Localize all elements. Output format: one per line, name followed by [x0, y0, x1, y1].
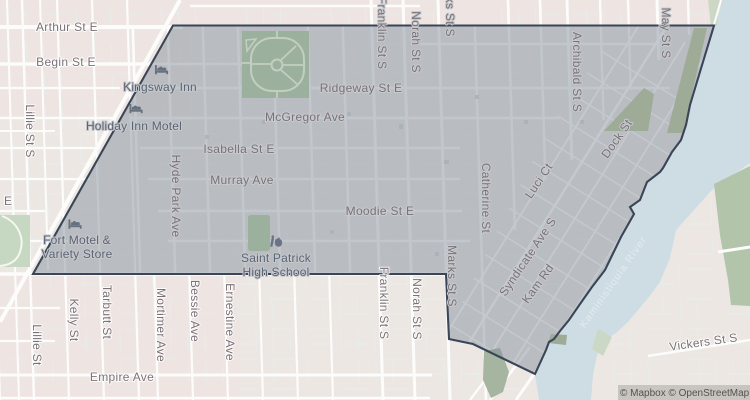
svg-text:Tarbutt St: Tarbutt St	[100, 285, 114, 340]
svg-text:Begin St E: Begin St E	[36, 55, 96, 69]
svg-text:Variety Store: Variety Store	[41, 247, 112, 261]
svg-text:Kingsway Inn: Kingsway Inn	[123, 80, 197, 94]
svg-text:Saint Patrick: Saint Patrick	[241, 251, 312, 265]
svg-text:Kelly St: Kelly St	[67, 298, 81, 341]
svg-text:Murray Ave: Murray Ave	[210, 173, 273, 187]
svg-text:© Mapbox © OpenStreetMap: © Mapbox © OpenStreetMap	[620, 388, 750, 399]
svg-text:Lillie St S: Lillie St S	[23, 104, 37, 157]
svg-text:Marks St S: Marks St S	[443, 0, 457, 37]
svg-text:Franklin St S: Franklin St S	[375, 0, 389, 69]
svg-text:Holiday Inn Motel: Holiday Inn Motel	[86, 119, 182, 133]
svg-text:Catherine St: Catherine St	[479, 163, 493, 234]
svg-text:McGregor Ave: McGregor Ave	[265, 110, 345, 124]
svg-text:Mortimer Ave: Mortimer Ave	[154, 288, 168, 362]
svg-text:Hyde Park Ave: Hyde Park Ave	[169, 154, 183, 237]
svg-text:Fort Motel &: Fort Motel &	[43, 233, 111, 247]
svg-text:Ernestine Ave: Ernestine Ave	[223, 283, 237, 361]
svg-text:Arthur St E: Arthur St E	[36, 20, 98, 34]
svg-text:Marks St S: Marks St S	[445, 245, 459, 307]
svg-text:Norah St S: Norah St S	[410, 278, 424, 340]
svg-text:Ridgeway St E: Ridgeway St E	[320, 81, 403, 95]
svg-text:Empire Ave: Empire Ave	[90, 370, 154, 384]
svg-text:Lillie St: Lillie St	[30, 324, 44, 366]
svg-text:Isabella St E: Isabella St E	[203, 142, 274, 156]
svg-text:May St S: May St S	[659, 7, 673, 58]
svg-text:Franklin St S: Franklin St S	[377, 267, 391, 340]
svg-text:High School: High School	[243, 265, 310, 279]
svg-text:Moodie St E: Moodie St E	[346, 204, 415, 218]
svg-text:Archibald St S: Archibald St S	[570, 32, 584, 112]
svg-text:Norah St S: Norah St S	[409, 11, 423, 73]
svg-text:E: E	[4, 194, 12, 208]
svg-text:Bessie Ave: Bessie Ave	[188, 280, 202, 342]
